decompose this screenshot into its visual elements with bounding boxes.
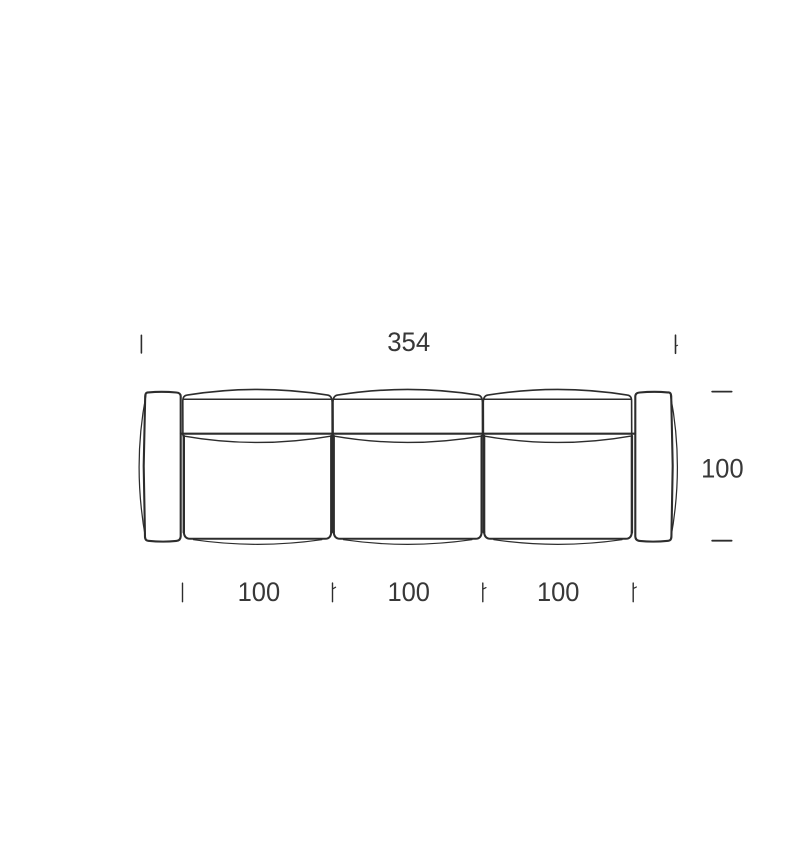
svg-text:100: 100: [701, 454, 744, 484]
svg-text:354: 354: [387, 327, 430, 357]
svg-text:100: 100: [238, 577, 281, 607]
svg-text:100: 100: [537, 577, 580, 607]
svg-text:100: 100: [387, 577, 430, 607]
